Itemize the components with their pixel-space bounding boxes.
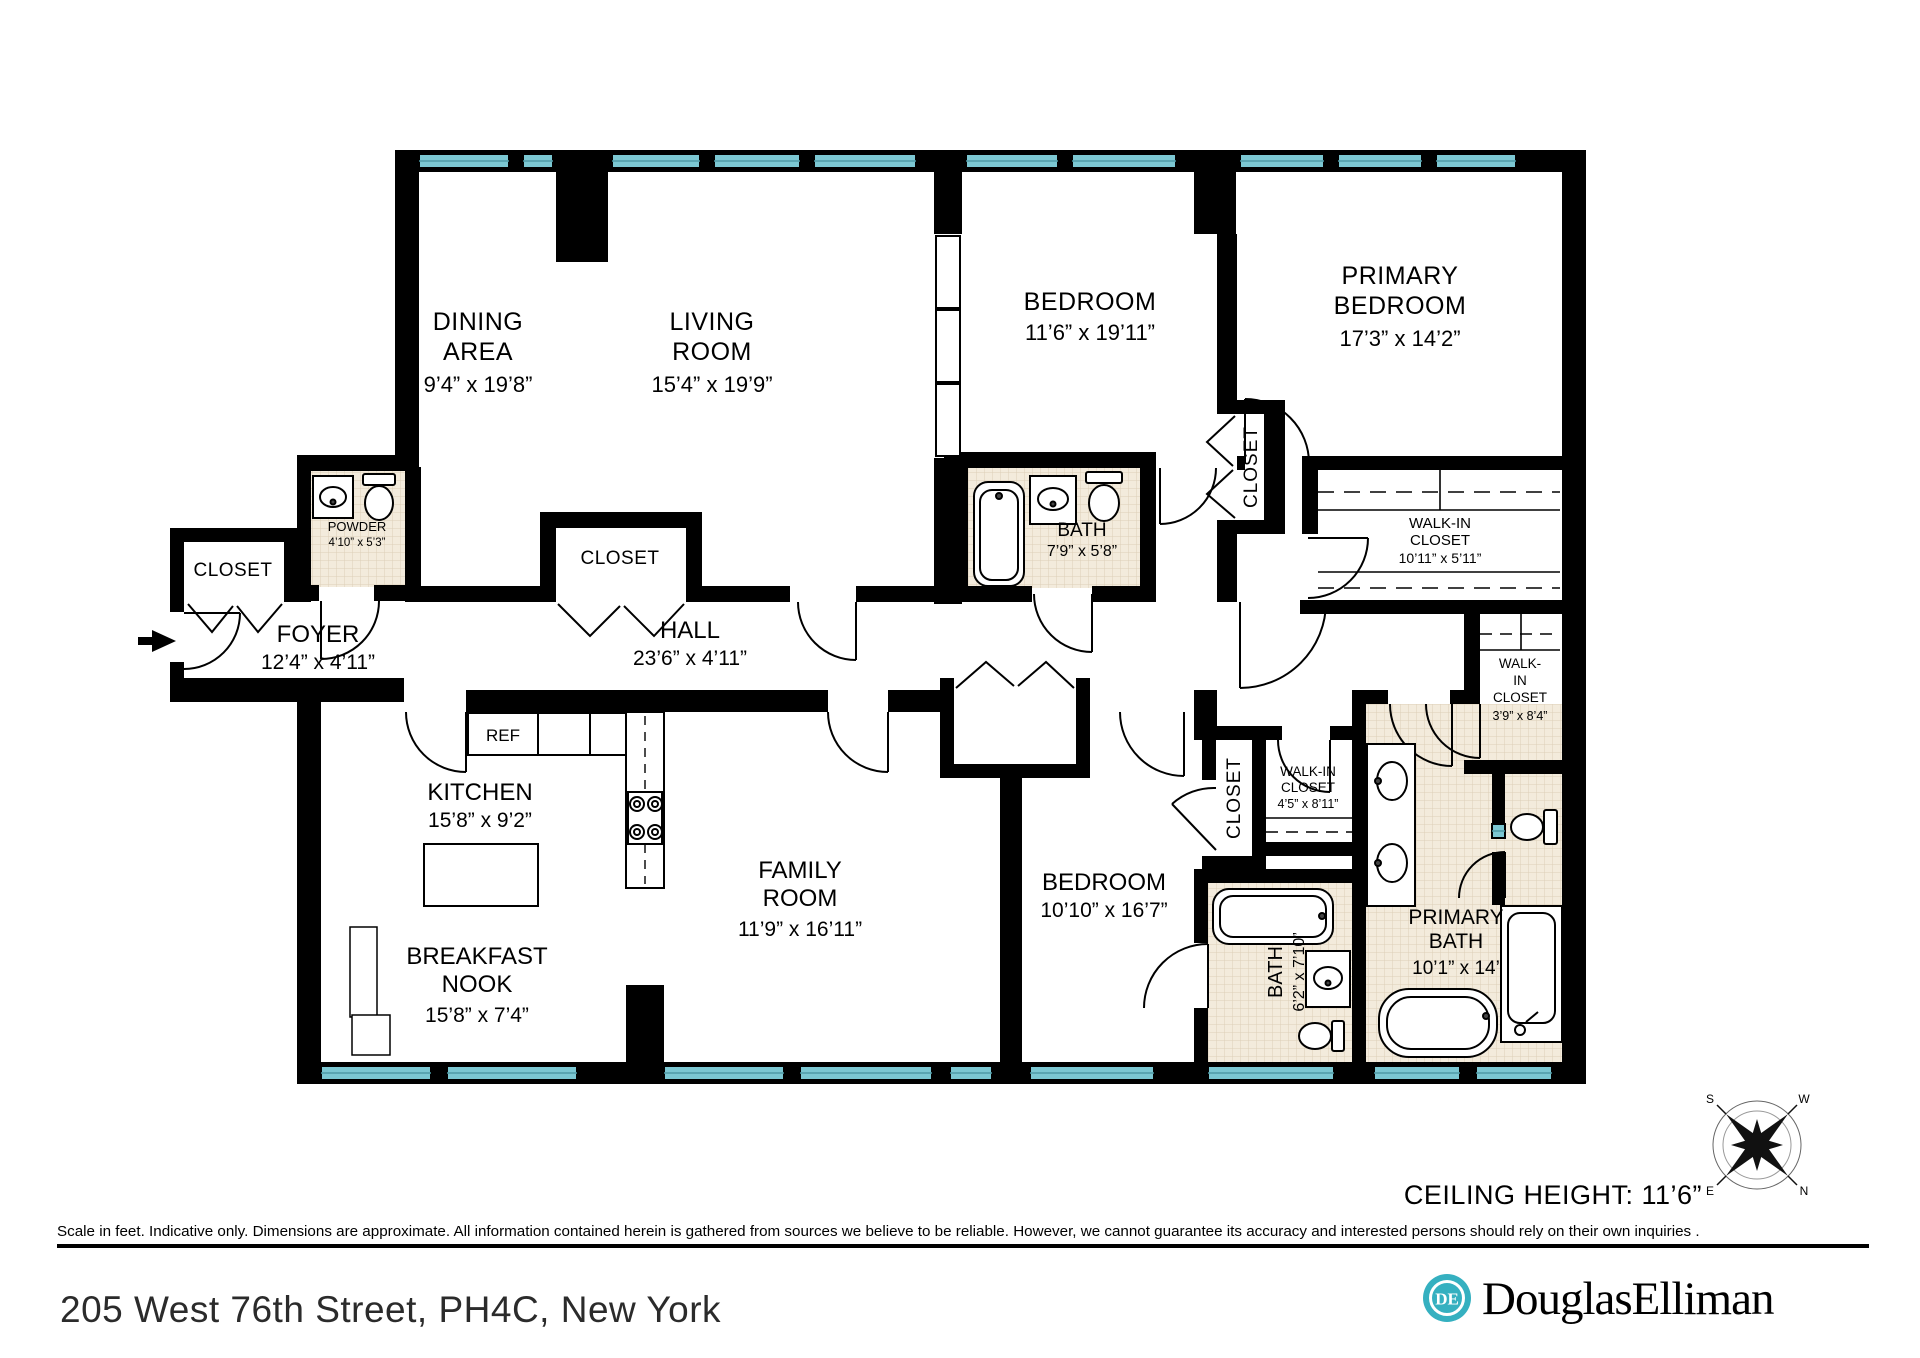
powder-label: POWDER xyxy=(328,519,387,534)
wall-segment xyxy=(1076,678,1090,778)
shower-fixture xyxy=(1501,906,1562,1042)
family-room-label2: ROOM xyxy=(763,885,838,912)
kitchen-dims: 15’8” x 9’2” xyxy=(428,809,532,832)
wall-segment xyxy=(1194,883,1208,943)
floorplan-canvas: DINING AREA 9’4” x 19’8” LIVING ROOM 15’… xyxy=(0,0,1920,1358)
walkin39-label3: CLOSET xyxy=(1493,690,1547,705)
wall-segment xyxy=(944,468,968,602)
wall-segment xyxy=(1300,600,1562,614)
bath1-tub-fixture xyxy=(974,482,1024,586)
wall-segment xyxy=(170,528,184,612)
bath2-tub-fixture xyxy=(1213,889,1333,944)
hall-label: HALL xyxy=(660,617,720,644)
bath2-toilet-fixture xyxy=(1299,1021,1344,1051)
wall-segment xyxy=(297,585,319,601)
bath2-sink-fixture xyxy=(1306,951,1350,1007)
closet-bed1-label: CLOSET xyxy=(1241,426,1262,508)
bedroom2-label: BEDROOM xyxy=(1042,869,1166,896)
wall-segment xyxy=(1092,586,1140,602)
walkin39-label: WALK- xyxy=(1499,656,1541,671)
wall-segment xyxy=(297,455,419,471)
kitchen-counter-fixture xyxy=(538,713,628,755)
wall-segment xyxy=(934,150,962,234)
wall-segment xyxy=(540,512,556,602)
wall-segment xyxy=(419,586,540,602)
primary-bedroom-dims: 17’3” x 14’2” xyxy=(1339,326,1460,351)
walkin-primary-label2: CLOSET xyxy=(1410,532,1470,549)
living-dims: 15’4” x 19’9” xyxy=(651,372,772,397)
primary-bath-dims: 10’1” x 14’ xyxy=(1412,958,1500,979)
primary-tub-fixture xyxy=(1379,989,1497,1057)
wall-segment xyxy=(1194,869,1366,883)
walkin-primary-dims: 10’11” x 5’11” xyxy=(1399,550,1482,566)
bath2-label: BATH xyxy=(1265,946,1287,998)
walkin39-label2: IN xyxy=(1513,673,1527,688)
powder-sink-fixture xyxy=(313,476,353,518)
family-room-dims: 11’9” x 16’11” xyxy=(738,918,862,941)
closet-bed2-label: CLOSET xyxy=(1224,757,1245,839)
wall-segment xyxy=(1464,614,1480,704)
wall-segment xyxy=(284,528,298,602)
wall-segment xyxy=(626,985,664,1062)
refrigerator-label: REF xyxy=(486,726,520,745)
wall-segment xyxy=(540,512,702,528)
wall-segment xyxy=(1217,234,1237,414)
wall-segment xyxy=(686,512,702,602)
wall-segment xyxy=(856,586,934,602)
compass-e: E xyxy=(1706,1184,1714,1198)
wall-segment xyxy=(1450,690,1464,704)
kitchen-island-fixture xyxy=(424,844,538,906)
floorplan-page: DINING AREA 9’4” x 19’8” LIVING ROOM 15’… xyxy=(0,0,1920,1358)
wall-segment xyxy=(1464,760,1562,774)
address-text: 205 West 76th Street, PH4C, New York xyxy=(60,1289,721,1330)
primary-bedroom-label2: BEDROOM xyxy=(1334,292,1467,320)
primary-bath-label: PRIMARY xyxy=(1408,906,1503,929)
wall-segment xyxy=(405,467,421,602)
wall-segment xyxy=(395,150,419,467)
bedroom1-label: BEDROOM xyxy=(1024,288,1157,316)
wall-segment xyxy=(297,455,311,602)
wall-segment xyxy=(944,452,1144,468)
wall-segment xyxy=(1352,704,1366,1062)
wall-segment xyxy=(968,586,1032,602)
wall-segment xyxy=(1217,534,1237,602)
ceiling-height-note: CEILING HEIGHT: 11’6” xyxy=(1404,1180,1702,1210)
foyer-dims: 12’4” x 4’11” xyxy=(261,651,375,674)
wall-segment xyxy=(1000,778,1022,1062)
nook-cabinet-fixture xyxy=(350,927,390,1055)
wall-segment xyxy=(1492,852,1505,905)
footer-rule xyxy=(57,1244,1869,1248)
foyer-label: FOYER xyxy=(277,621,360,648)
nook-label2: NOOK xyxy=(442,971,513,998)
wall-segment xyxy=(1202,726,1282,740)
kitchen-label: KITCHEN xyxy=(427,779,532,806)
powder-dims: 4’10” x 5’3” xyxy=(329,537,386,549)
bedroom2-dims: 10’10” x 16’7” xyxy=(1040,899,1167,922)
compass-s: S xyxy=(1706,1092,1714,1106)
primary-vanity-fixture xyxy=(1367,744,1415,906)
entry-arrow-icon xyxy=(138,630,176,652)
bath1-dims: 7’9” x 5’8” xyxy=(1047,543,1117,560)
douglas-elliman-logo: DE DouglasElliman xyxy=(1423,1273,1774,1325)
living-label: LIVING xyxy=(670,308,755,336)
bath1-sink-fixture xyxy=(1030,476,1076,524)
wall-segment xyxy=(374,585,419,601)
wall-segment xyxy=(1562,150,1586,1084)
wall-segment xyxy=(1252,740,1266,856)
wall-segment xyxy=(1140,452,1156,602)
wall-segment xyxy=(1202,740,1216,780)
compass-n: N xyxy=(1800,1184,1809,1198)
dining-label: DINING xyxy=(433,308,524,336)
disclaimer-text: Scale in feet. Indicative only. Dimensio… xyxy=(57,1223,1700,1240)
closet-hall-label: CLOSET xyxy=(580,548,659,569)
walkin45-label2: CLOSET xyxy=(1281,780,1335,795)
compass-rose: S W E N xyxy=(1706,1092,1810,1198)
primary-bath-label2: BATH xyxy=(1429,930,1483,953)
wall-segment xyxy=(466,690,828,712)
wall-segment xyxy=(940,678,954,778)
wall-segment xyxy=(702,586,790,602)
wall-segment xyxy=(1352,690,1388,704)
bath1-label: BATH xyxy=(1057,520,1106,541)
walkin39-dims: 3’9” x 8’4” xyxy=(1493,709,1548,723)
wall-segment xyxy=(1266,842,1366,856)
wall-segment xyxy=(1492,774,1505,824)
wall-segment xyxy=(1217,520,1285,534)
wall-segment xyxy=(1194,150,1236,234)
powder-toilet-fixture xyxy=(363,474,395,520)
walkin-primary-label: WALK-IN xyxy=(1409,515,1471,532)
closet-foyer-label: CLOSET xyxy=(193,560,272,581)
wall-segment xyxy=(297,702,321,1062)
walkin45-dims: 4’5” x 8’11” xyxy=(1278,797,1339,811)
dining-label2: AREA xyxy=(443,338,513,366)
dining-dims: 9’4” x 19’8” xyxy=(424,372,533,397)
family-room-label: FAMILY xyxy=(758,857,842,884)
nook-label: BREAKFAST xyxy=(406,943,548,970)
wall-segment xyxy=(888,690,940,712)
nook-dims: 15’8” x 7’4” xyxy=(425,1004,529,1027)
bath2-dims: 6’2” x 7’10” xyxy=(1291,932,1308,1011)
wall-segment xyxy=(170,678,404,702)
wall-segment xyxy=(1302,456,1318,534)
glass-partition xyxy=(936,236,960,456)
living-label2: ROOM xyxy=(672,338,752,366)
bedroom1-dims: 11’6” x 19’11” xyxy=(1025,320,1155,345)
wall-segment xyxy=(940,764,1090,778)
wall-segment xyxy=(1202,856,1266,870)
hall-dims: 23’6” x 4’11” xyxy=(633,647,747,670)
wall-segment xyxy=(556,150,608,262)
wall-segment xyxy=(1194,1008,1208,1062)
compass-w: W xyxy=(1798,1092,1810,1106)
wall-segment xyxy=(170,528,298,542)
stove-fixture xyxy=(626,712,664,888)
logo-wordmark: DouglasElliman xyxy=(1482,1273,1774,1325)
bath1-toilet-fixture xyxy=(1086,472,1122,521)
wall-segment xyxy=(1264,414,1285,520)
walkin45-label: WALK-IN xyxy=(1280,764,1336,779)
logo-monogram: DE xyxy=(1435,1290,1459,1309)
wall-segment xyxy=(1312,456,1562,470)
primary-bedroom-label: PRIMARY xyxy=(1342,262,1459,290)
